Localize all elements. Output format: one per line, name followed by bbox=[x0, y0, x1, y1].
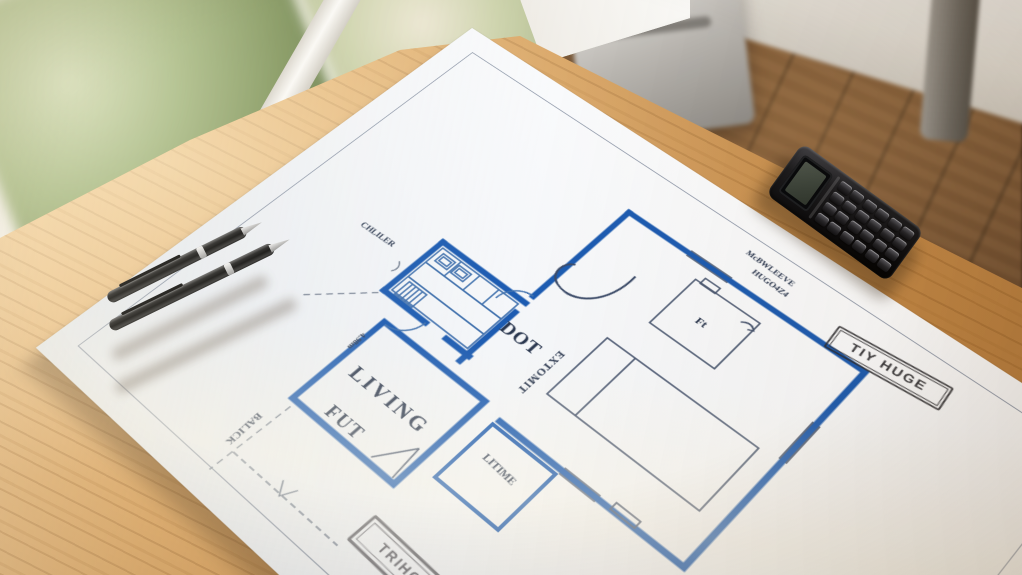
room-label-entry: DOT bbox=[495, 318, 547, 359]
plan-furniture bbox=[356, 208, 871, 575]
room-label-fut: FUT bbox=[320, 401, 370, 444]
room-label-bathroom: LITIME bbox=[479, 452, 519, 488]
photo-scene: LIVING FUT DOT EXTOMIT LITIME Ft CHLILER… bbox=[0, 0, 1022, 575]
dim-label-bottom-left: BALICK bbox=[222, 411, 264, 447]
kitchen-cabinets bbox=[367, 238, 533, 372]
room-label-closet: Ft bbox=[692, 316, 710, 331]
dim-label-top-left: CHLILER bbox=[358, 220, 398, 248]
room-label-hallway: EXTOMIT bbox=[514, 349, 566, 396]
